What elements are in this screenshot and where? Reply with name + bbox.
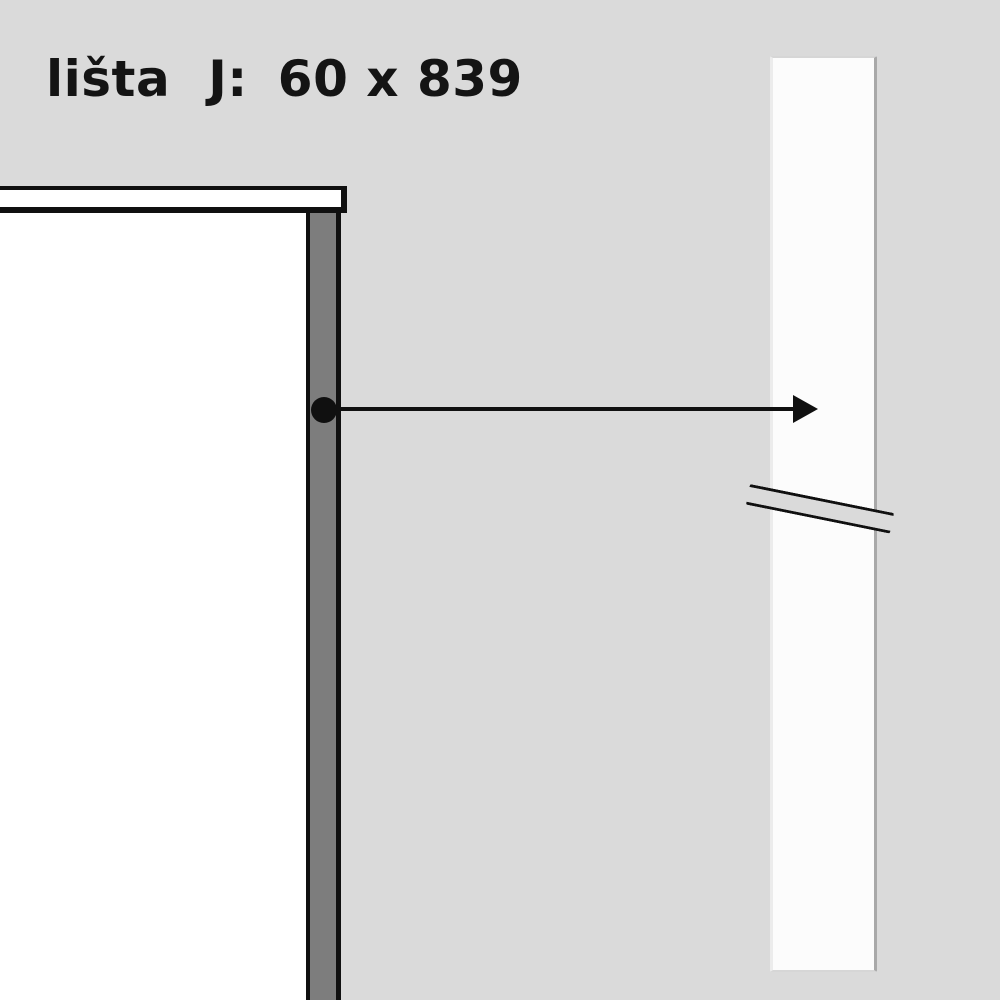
page-title: lištaJ:60 x 839: [46, 50, 523, 108]
leader-arrow-line: [324, 407, 794, 411]
cabinet-side-panel: [0, 213, 310, 1000]
cabinet-top-panel: [0, 186, 347, 213]
leader-arrow-head-icon: [793, 395, 818, 423]
title-part-label: lišta: [46, 50, 170, 108]
cabinet-edge-strip: [310, 213, 341, 1000]
diagram-canvas: lištaJ:60 x 839: [0, 0, 1000, 1000]
title-part-code: J:: [208, 50, 248, 108]
title-part-dimensions: 60 x 839: [278, 50, 523, 108]
